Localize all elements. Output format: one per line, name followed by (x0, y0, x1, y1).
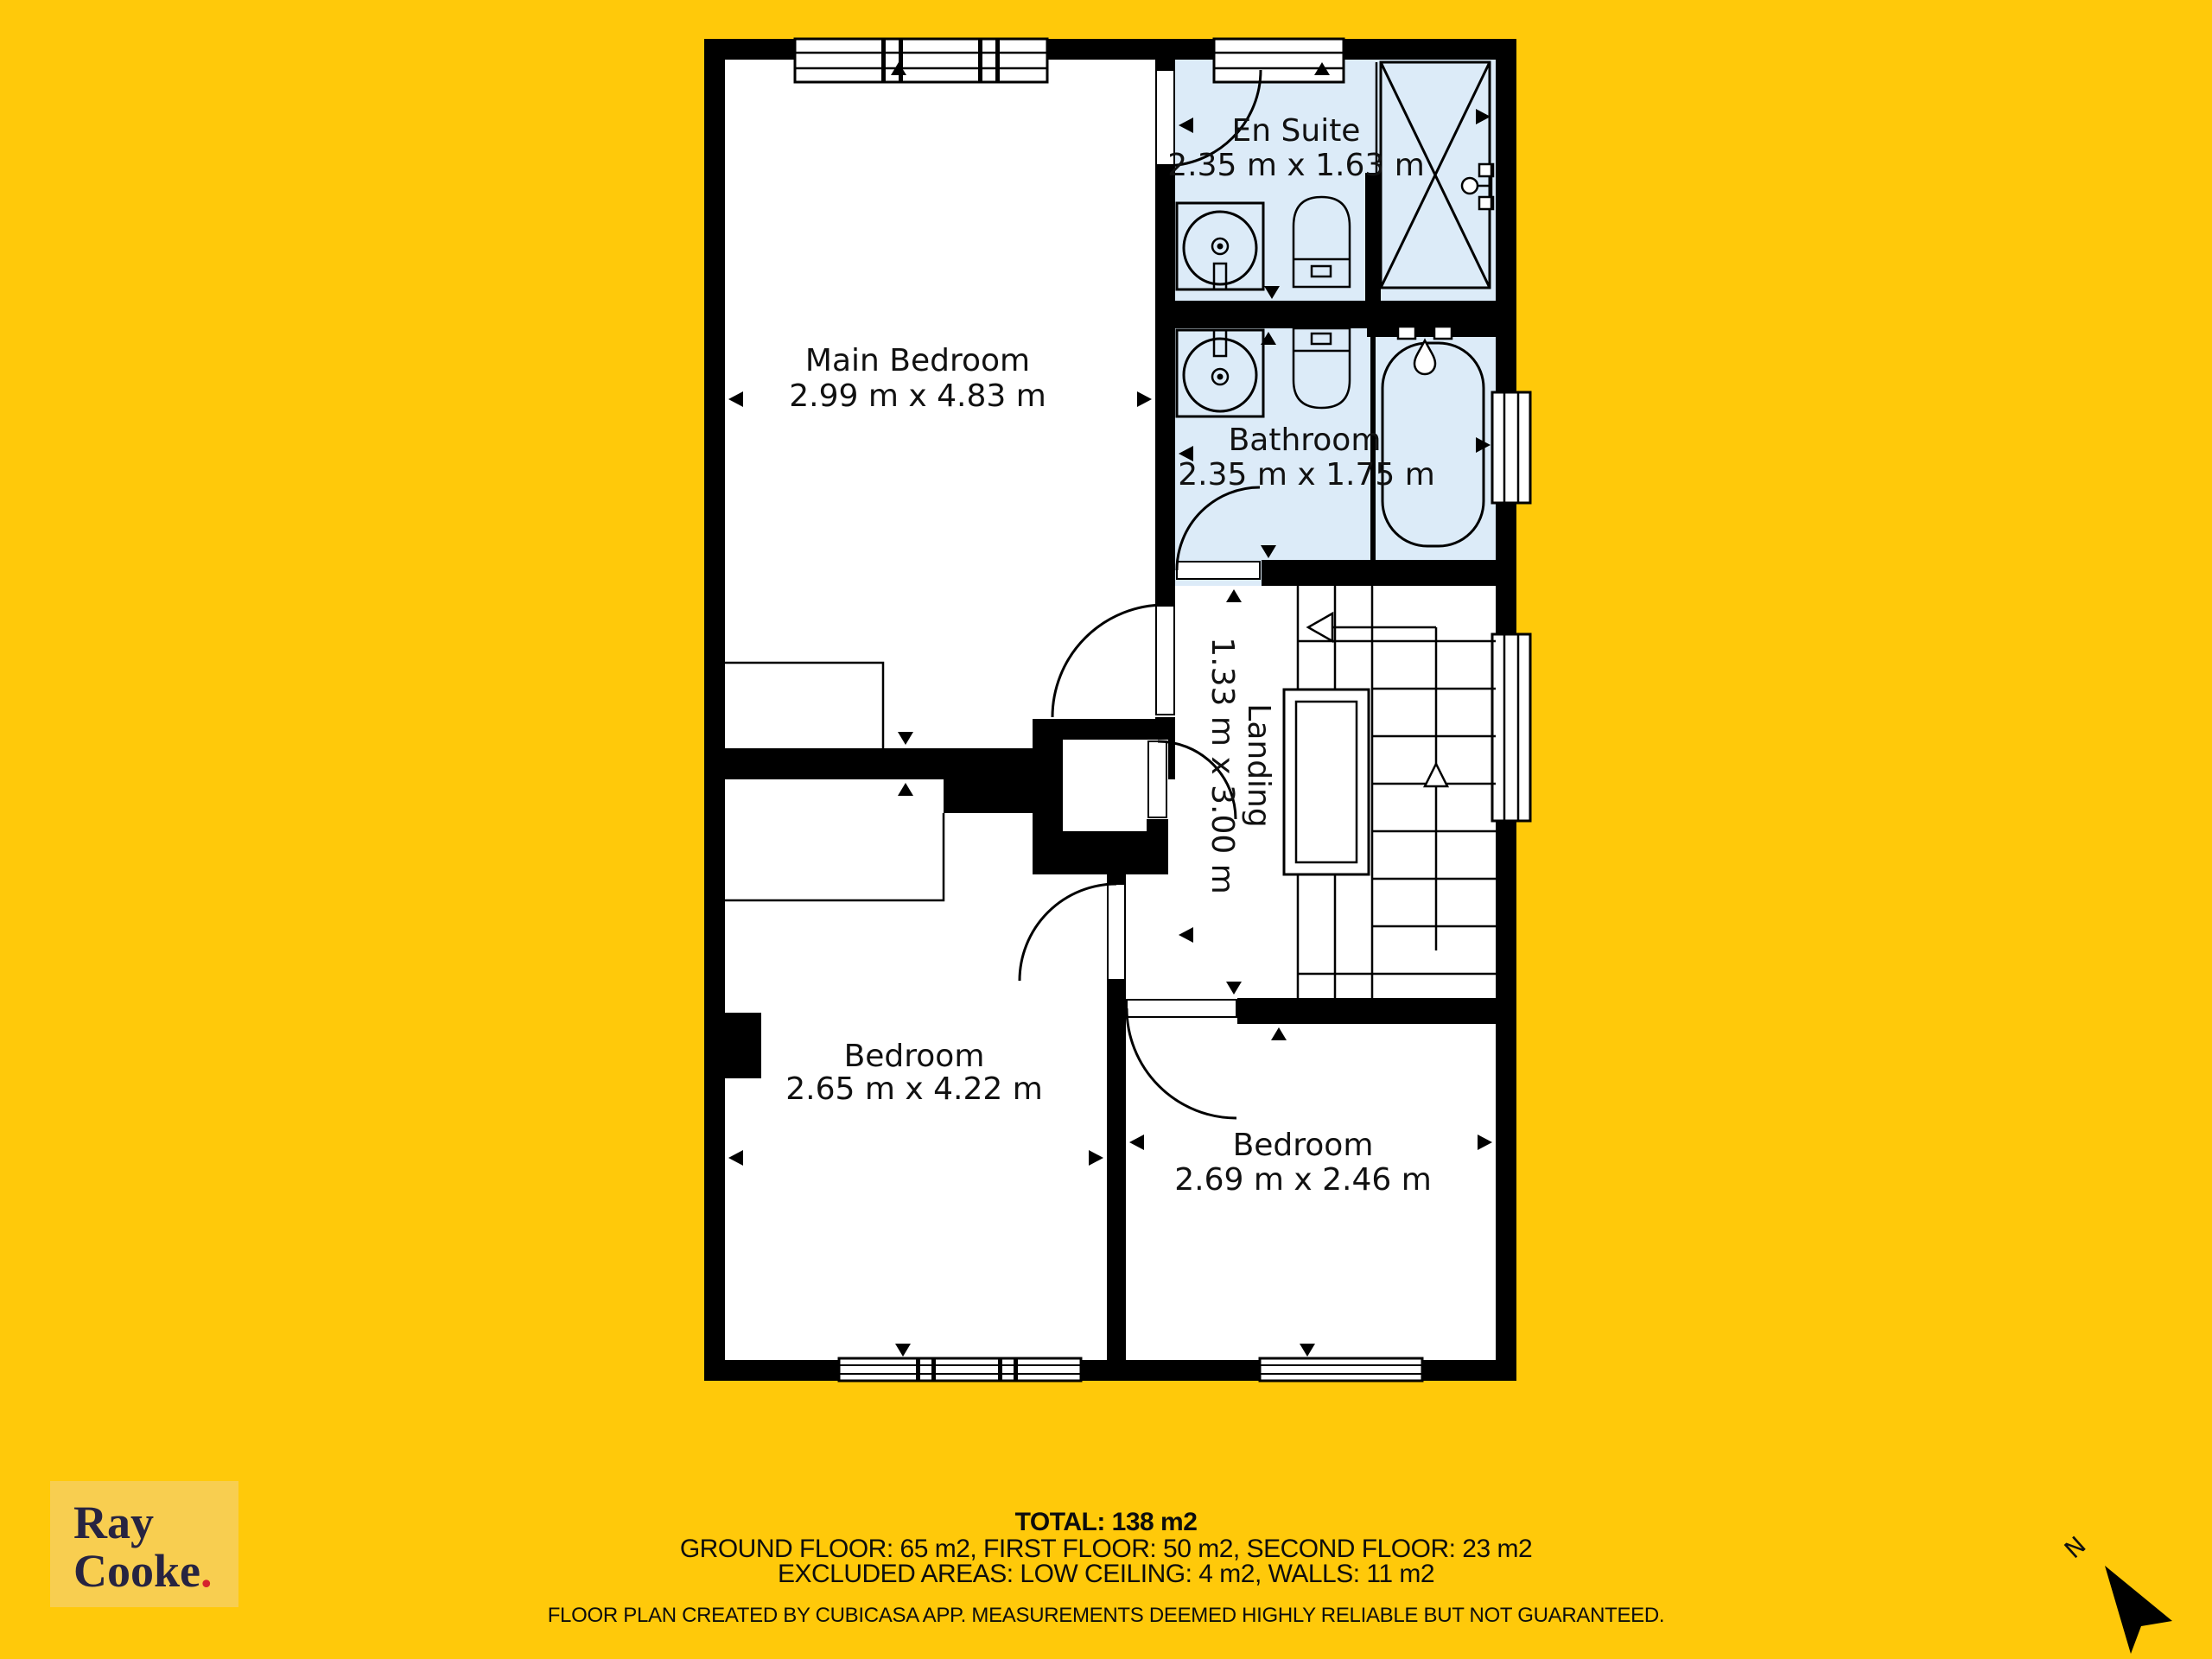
landing-sliver-floor (1168, 779, 1175, 874)
logo-line-1: Ray (73, 1498, 238, 1547)
chimney-breast (725, 1013, 761, 1078)
window-landing-right (1492, 634, 1530, 821)
room-label-bedroom-right: Bedroom (1233, 1128, 1374, 1163)
summary-excluded: EXCLUDED AREAS: LOW CEILING: 4 m2, WALLS… (0, 1560, 2212, 1589)
wall-ensuite-left-stub (1155, 60, 1175, 69)
logo-dot: . (200, 1545, 213, 1597)
wall-above-bathtub (1367, 301, 1496, 337)
ray-cooke-logo: Ray Cooke. (50, 1481, 238, 1607)
room-label-bedroom-left: Bedroom (844, 1039, 985, 1074)
wall-lower-stub-bottom (1107, 981, 1126, 1024)
wall-lower-stub-top (1107, 874, 1126, 883)
wall-right-column-left (1155, 166, 1175, 605)
floor-plan-page: Main Bedroom 2.99 m x 4.83 m En Suite 2.… (0, 0, 2212, 1659)
room-dims-main-bedroom: 2.99 m x 4.83 m (789, 378, 1046, 414)
floor-plan-drawing: Main Bedroom 2.99 m x 4.83 m En Suite 2.… (0, 0, 2212, 1659)
window-bedroom-left-bottom (839, 1358, 1081, 1381)
wall-landing-bedroom (1237, 998, 1516, 1024)
room-label-main-bedroom: Main Bedroom (805, 343, 1030, 378)
wall-mid-chunk (944, 748, 1033, 813)
room-label-bathroom: Bathroom (1229, 423, 1382, 458)
window-en-suite-top (1214, 39, 1344, 82)
landing-alcove-floor (1126, 874, 1175, 998)
window-bedroom-right-bottom (1260, 1358, 1422, 1381)
cupboard-floor (1063, 740, 1147, 831)
room-label-landing: Landing (1241, 703, 1276, 827)
summary-disclaimer: FLOOR PLAN CREATED BY CUBICASA APP. MEAS… (0, 1604, 2212, 1628)
logo-line-2-text: Cooke (73, 1545, 200, 1597)
summary-total: TOTAL: 138 m2 (0, 1508, 2212, 1537)
window-bathroom-right (1492, 392, 1530, 503)
room-dims-bedroom-left: 2.65 m x 4.22 m (785, 1071, 1043, 1107)
room-dims-en-suite: 2.35 m x 1.63 m (1167, 148, 1425, 183)
logo-line-2: Cooke. (73, 1547, 238, 1595)
room-dims-bedroom-right: 2.69 m x 2.46 m (1174, 1162, 1432, 1198)
window-main-bedroom-top (795, 39, 1047, 82)
wall-shower-jog (1365, 173, 1381, 301)
room-dims-landing: 1.33 m x 3.00 m (1205, 637, 1240, 894)
room-label-en-suite: En Suite (1232, 113, 1361, 149)
room-dims-bathroom: 2.35 m x 1.75 m (1178, 457, 1435, 493)
